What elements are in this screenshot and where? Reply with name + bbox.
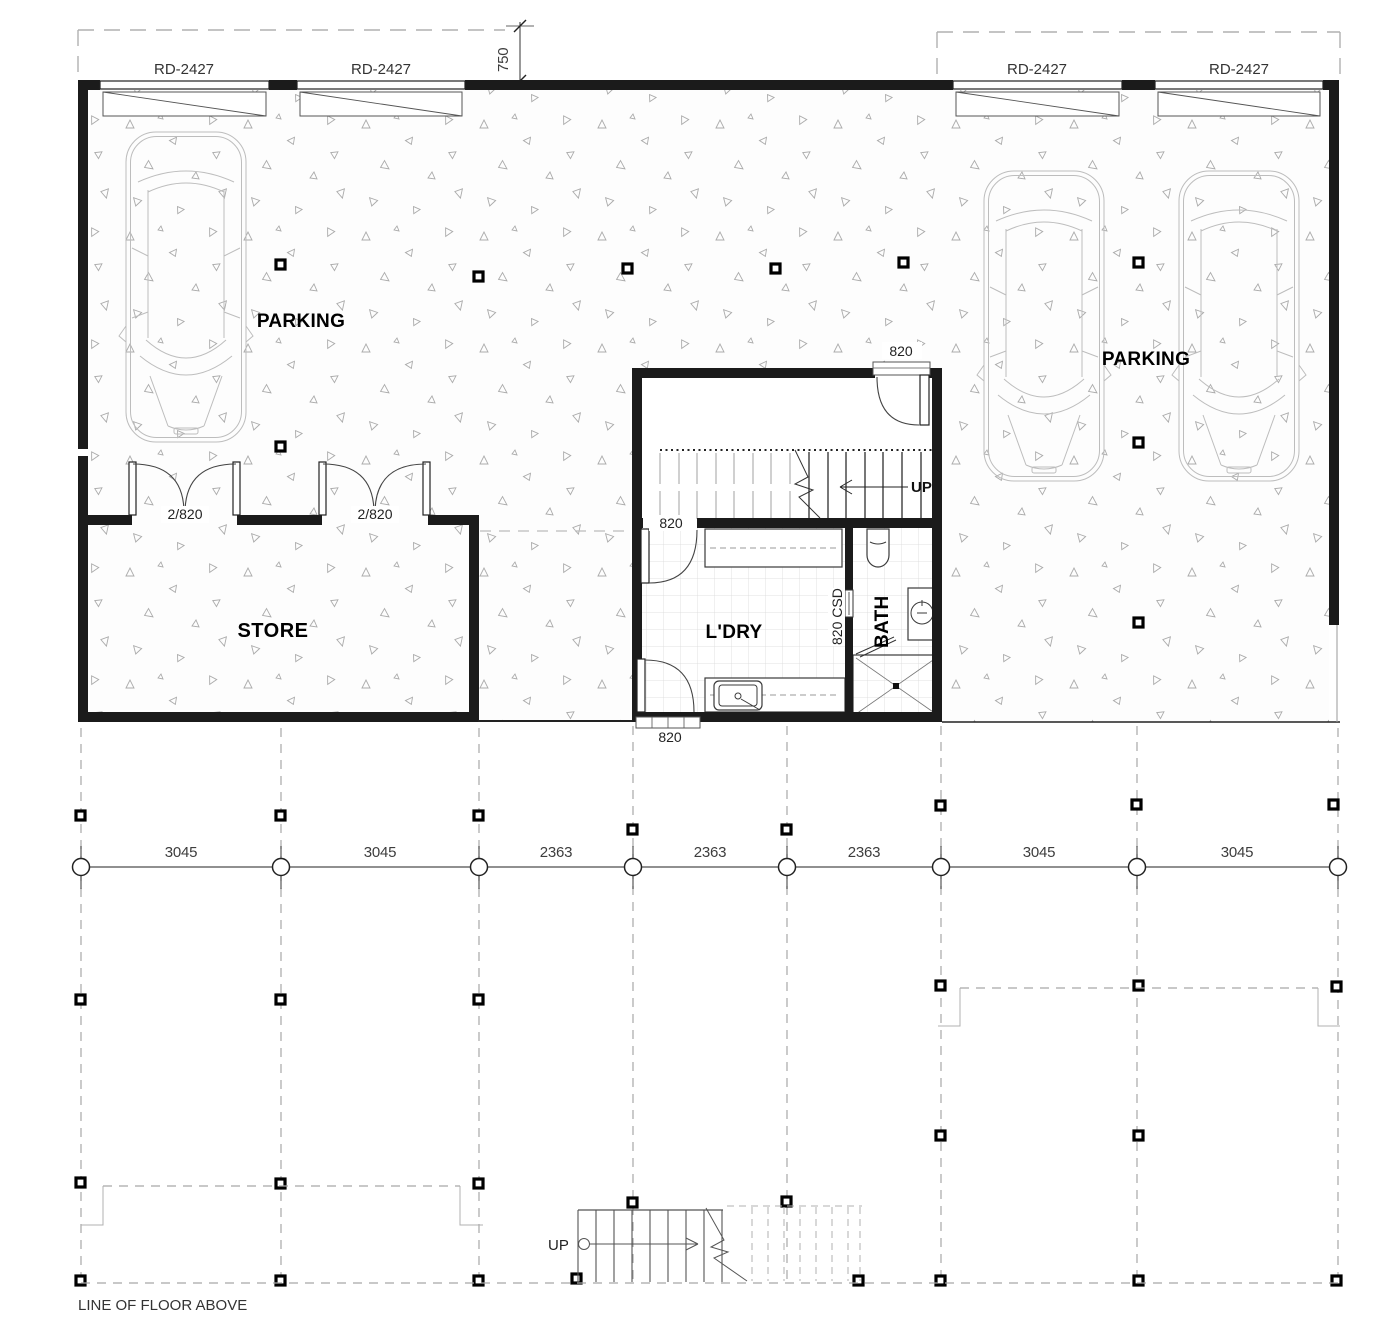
- toilet: [867, 529, 889, 567]
- dim-750-label: 750: [495, 48, 512, 72]
- roller-door-4-label: RD-2427: [1209, 61, 1269, 78]
- lower-stair-up-label: UP: [548, 1237, 569, 1254]
- wall-joint-gap: [78, 449, 88, 456]
- roller-door-2-label: RD-2427: [351, 61, 411, 78]
- line-of-floor-above-note: LINE OF FLOOR ABOVE: [78, 1297, 247, 1314]
- grid-dim-labels: 3045 3045 2363 2363 2363 3045 3045: [165, 844, 1254, 861]
- grid-dimension-line: 3045 3045 2363 2363 2363 3045 3045: [73, 844, 1347, 889]
- ground-floor-plan-drawing: 750 UP: [0, 0, 1400, 1325]
- roller-door-3-label: RD-2427: [1007, 61, 1067, 78]
- laundry-label: L'DRY: [705, 622, 762, 643]
- wall-right: [1329, 80, 1339, 625]
- csd-label-group: 820 CSD: [828, 588, 845, 646]
- laundry-top-door-label: 820: [659, 515, 683, 531]
- roller-door-1: RD-2427: [100, 61, 269, 116]
- parking-right-label: PARKING: [1102, 349, 1190, 370]
- roller-door-4: RD-2427: [1155, 61, 1323, 116]
- floor-plan-page: 750 UP: [0, 0, 1400, 1325]
- laundry-bath-wall-lower: [845, 617, 853, 712]
- lower-stair-treads: [578, 1210, 722, 1282]
- store-door-1-label: 2/820: [167, 506, 202, 522]
- grid-dim-7: 3045: [1221, 844, 1254, 861]
- entry-door-label: 820: [889, 343, 913, 359]
- laundry-bath-wall-upper: [845, 528, 853, 590]
- store-wall-bottom: [78, 712, 479, 722]
- roller-door-1-label: RD-2427: [154, 61, 214, 78]
- parking-left-label: PARKING: [257, 311, 345, 332]
- store-wall-right: [469, 515, 479, 722]
- laundry-sink: [714, 681, 762, 710]
- stair-up-label: UP: [911, 479, 932, 496]
- grid-dim-1: 3045: [165, 844, 198, 861]
- store-label: STORE: [237, 620, 308, 642]
- cavity-slider-door: [845, 590, 853, 617]
- lower-stair-treads-beyond: [752, 1207, 860, 1281]
- roller-door-2: RD-2427: [297, 61, 465, 116]
- lower-stair-break-line: [706, 1208, 747, 1281]
- block-wall-right: [932, 368, 942, 722]
- csd-door-label: 820 CSD: [829, 588, 845, 645]
- laundry-bottom-door-label: 820: [658, 729, 682, 745]
- grid-dim-6: 3045: [1023, 844, 1056, 861]
- grid-dim-4: 2363: [694, 844, 727, 861]
- lower-stair: UP: [548, 1206, 862, 1282]
- grid-dashed-lines: [81, 726, 1338, 1283]
- stair-laundry-wall: [697, 518, 942, 528]
- store-door-2-label: 2/820: [357, 506, 392, 522]
- bath-label: BATH: [872, 595, 893, 648]
- wall-left: [78, 80, 88, 722]
- roller-door-3: RD-2427: [953, 61, 1122, 116]
- floor-above-outline-lower: [81, 988, 1340, 1283]
- floor-above-outline-top: [78, 30, 1340, 80]
- grid-dim-2: 3045: [364, 844, 397, 861]
- grid-dim-5: 2363: [848, 844, 881, 861]
- grid-dim-3: 2363: [540, 844, 573, 861]
